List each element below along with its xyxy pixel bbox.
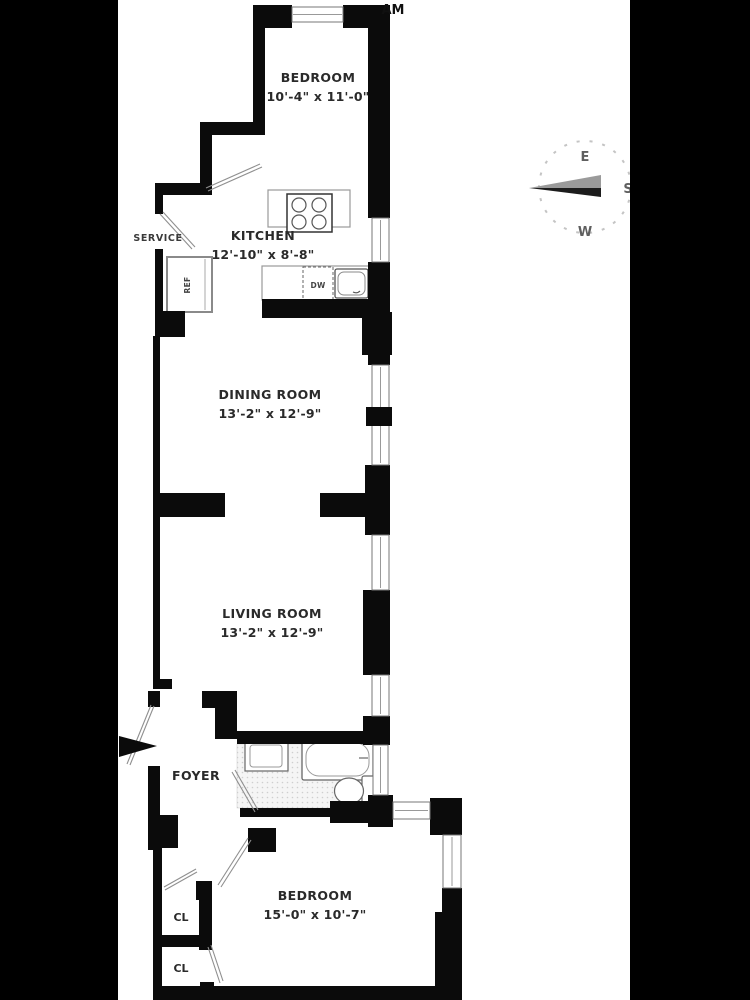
window-mullion (366, 407, 392, 426)
room-label-service: SERVICE (133, 233, 182, 244)
dishwasher-label: DW (310, 281, 326, 290)
room-dims-dining: 13'-2" x 12'-9" (218, 406, 321, 421)
room-label-kitchen: KITCHEN (231, 228, 295, 243)
room-label-dining: DINING ROOM (219, 387, 322, 402)
refrigerator-label: REF (183, 277, 192, 294)
floorplan-canvas: BEDROOM 10'-4" x 11'-0" KITCHEN 12'-10" … (0, 0, 750, 1000)
window (372, 218, 389, 262)
compass-west-label: W (578, 225, 592, 240)
room-dims-bedroom-bottom: 15'-0" x 10'-7" (263, 907, 366, 922)
room-label-living: LIVING ROOM (222, 606, 322, 621)
room-label-closet-2: CL (173, 962, 188, 975)
window (372, 535, 389, 590)
compass-east-label: E (581, 150, 590, 165)
window (443, 835, 461, 888)
window (372, 675, 389, 716)
window (373, 745, 388, 795)
window (393, 802, 430, 819)
room-label-foyer: FOYER (172, 768, 220, 783)
room-label-bedroom-bottom: BEDROOM (278, 888, 353, 903)
room-label-bedroom-top: BEDROOM (281, 70, 356, 85)
room-dims-bedroom-top: 10'-4" x 11'-0" (266, 89, 369, 104)
toilet-bowl (335, 778, 364, 804)
room-dims-kitchen: 12'-10" x 8'-8" (211, 247, 314, 262)
letterbox-right (630, 0, 750, 1000)
floorplan-screenshot: BEDROOM 10'-4" x 11'-0" KITCHEN 12'-10" … (0, 0, 750, 1000)
watermark-text: AM (382, 3, 405, 18)
letterbox-left (0, 0, 118, 1000)
room-dims-living: 13'-2" x 12'-9" (220, 625, 323, 640)
bathroom-sink-basin (250, 745, 282, 767)
window (292, 7, 343, 22)
room-label-closet-1: CL (173, 911, 188, 924)
